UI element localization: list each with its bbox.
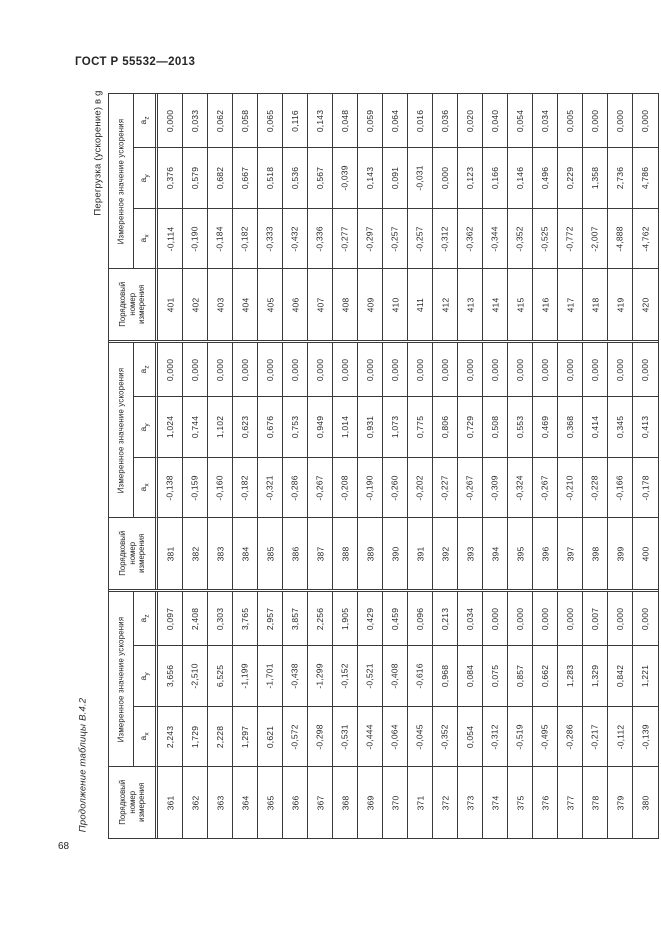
cell-az-366: 3,857 <box>283 592 308 646</box>
value-ay: 0,744 <box>190 416 200 438</box>
measurement-number: 420 <box>640 297 650 312</box>
value-az: 0,000 <box>641 358 651 380</box>
cell-ay-365: -1,701 <box>258 646 283 707</box>
value-az: 2,408 <box>190 607 200 629</box>
ordinal-header-line: Порядковый <box>118 282 128 327</box>
cell-ay-417: 0,229 <box>558 148 583 209</box>
cell-num-397: 397 <box>558 518 583 589</box>
value-ay: 2,736 <box>615 167 625 189</box>
band-401-420: Измеренное значение ускоренияazayaxПоряд… <box>109 94 658 343</box>
value-ay: -0,521 <box>365 663 375 688</box>
value-ay: 4,786 <box>641 167 651 189</box>
cell-ay-381: 1,024 <box>158 397 183 458</box>
measurement-number: 377 <box>565 795 575 810</box>
ordinal-header-lines: Порядковыйномеризмерения <box>118 282 147 327</box>
measurement-number: 368 <box>340 795 350 810</box>
value-az: 0,000 <box>390 358 400 380</box>
cell-num-419: 419 <box>608 269 633 340</box>
cell-az-370: 0,459 <box>383 592 408 646</box>
value-ay: 0,968 <box>440 665 450 687</box>
cell-ax-419: -4,888 <box>608 209 633 269</box>
cell-num-420: 420 <box>633 269 658 340</box>
value-ay: 0,229 <box>565 167 575 189</box>
axis-base: a <box>138 675 148 680</box>
measurement-number: 414 <box>490 297 500 312</box>
cell-num-391: 391 <box>408 518 433 589</box>
value-ax: -0,267 <box>465 475 475 500</box>
value-az: 0,000 <box>240 358 250 380</box>
cell-az-362: 2,408 <box>183 592 208 646</box>
cell-ax-384: -0,182 <box>233 458 258 518</box>
cell-ay-418: 1,358 <box>583 148 608 209</box>
value-ax: -0,286 <box>565 724 575 749</box>
value-ax: -0,210 <box>565 475 575 500</box>
cell-az-382: 0,000 <box>183 343 208 397</box>
cell-ax-413: -0,362 <box>458 209 483 269</box>
axis-base: a <box>138 426 148 431</box>
cell-ax-362: 1,729 <box>183 707 208 767</box>
cell-ay-414: 0,166 <box>483 148 508 209</box>
value-az: 0,000 <box>590 358 600 380</box>
cell-num-374: 374 <box>483 767 508 838</box>
cell-num-386: 386 <box>283 518 308 589</box>
value-ay: 0,345 <box>615 416 625 438</box>
value-ay: 3,656 <box>165 665 175 687</box>
cell-ax-401: -0,114 <box>158 209 183 269</box>
measurement-number: 370 <box>390 795 400 810</box>
axis-label-text: ay <box>138 174 151 182</box>
value-ay: 1,221 <box>641 665 651 687</box>
cell-az-403: 0,062 <box>208 94 233 148</box>
ordinal-header: Порядковыйномеризмерения <box>109 767 158 838</box>
value-az: 0,000 <box>540 358 550 380</box>
ordinal-header-line: номер <box>127 531 137 576</box>
cell-ax-373: 0,054 <box>458 707 483 767</box>
cell-az-369: 0,429 <box>358 592 383 646</box>
measured-group-header-label: Измеренное значение ускорения <box>117 118 126 244</box>
value-ax: -0,267 <box>540 475 550 500</box>
measurement-number: 417 <box>565 297 575 312</box>
value-az: 0,116 <box>290 110 300 132</box>
axis-label-ay: ay <box>134 646 158 707</box>
value-ay: -1,701 <box>265 663 275 688</box>
value-az: 1,905 <box>340 607 350 629</box>
measurement-table: Измеренное значение ускоренияazayaxПоряд… <box>108 93 659 839</box>
value-ay: 1,358 <box>590 167 600 189</box>
cell-ay-382: 0,744 <box>183 397 208 458</box>
value-ax: -0,208 <box>340 475 350 500</box>
cell-ay-364: -1,199 <box>233 646 258 707</box>
cell-num-373: 373 <box>458 767 483 838</box>
rotated-units-caption: Перегрузка (ускорение) в g <box>93 90 104 215</box>
measurement-number: 407 <box>315 297 325 312</box>
cell-ax-388: -0,208 <box>333 458 358 518</box>
cell-num-395: 395 <box>508 518 533 589</box>
cell-ay-374: 0,075 <box>483 646 508 707</box>
cell-ax-396: -0,267 <box>533 458 558 518</box>
cell-az-380: 0,000 <box>633 592 658 646</box>
axis-base: a <box>138 238 148 243</box>
cell-ax-377: -0,286 <box>558 707 583 767</box>
cell-ay-412: 0,000 <box>433 148 458 209</box>
value-ay: 0,753 <box>290 416 300 438</box>
cell-ay-419: 2,736 <box>608 148 633 209</box>
axis-subscript: x <box>144 483 151 486</box>
cell-ay-368: -0,152 <box>333 646 358 707</box>
cell-az-400: 0,000 <box>633 343 658 397</box>
cell-ax-406: -0,432 <box>283 209 308 269</box>
measurement-number: 406 <box>290 297 300 312</box>
cell-az-404: 0,058 <box>233 94 258 148</box>
value-az: 0,059 <box>365 109 375 131</box>
cell-num-378: 378 <box>583 767 608 838</box>
value-az: 0,058 <box>240 109 250 131</box>
axis-label-text: ay <box>138 672 151 680</box>
value-az: 0,000 <box>190 358 200 380</box>
ordinal-header-line: номер <box>127 780 137 825</box>
cell-ay-379: 0,842 <box>608 646 633 707</box>
cell-ay-390: 1,073 <box>383 397 408 458</box>
value-ay: 0,806 <box>440 416 450 438</box>
value-ax: -0,114 <box>165 226 175 251</box>
cell-ax-389: -0,190 <box>358 458 383 518</box>
axis-base: a <box>138 120 148 125</box>
cell-az-414: 0,040 <box>483 94 508 148</box>
value-az: 0,000 <box>440 358 450 380</box>
value-ax: -0,045 <box>415 724 425 749</box>
measured-group-header-label: Измеренное значение ускорения <box>117 616 126 742</box>
axis-base: a <box>138 736 148 741</box>
cell-ay-395: 0,553 <box>508 397 533 458</box>
cell-az-413: 0,020 <box>458 94 483 148</box>
cell-ax-397: -0,210 <box>558 458 583 518</box>
value-az: 0,000 <box>641 607 651 629</box>
cell-ay-380: 1,221 <box>633 646 658 707</box>
value-ax: 0,621 <box>265 725 275 747</box>
measurement-number: 418 <box>590 297 600 312</box>
value-ay: 0,414 <box>590 416 600 438</box>
value-ay: 0,166 <box>490 167 500 189</box>
axis-base: a <box>138 618 148 623</box>
cell-ax-394: -0,309 <box>483 458 508 518</box>
cell-ay-375: 0,857 <box>508 646 533 707</box>
cell-num-398: 398 <box>583 518 608 589</box>
cell-ay-370: -0,408 <box>383 646 408 707</box>
cell-ax-402: -0,190 <box>183 209 208 269</box>
value-ax: -0,519 <box>515 724 525 749</box>
cell-ay-362: -2,510 <box>183 646 208 707</box>
cell-ay-400: 0,413 <box>633 397 658 458</box>
axis-label-ax: ax <box>134 209 158 269</box>
value-az: 0,034 <box>540 109 550 131</box>
cell-ay-367: -1,299 <box>308 646 333 707</box>
value-ax: 1,297 <box>240 725 250 747</box>
cell-ax-420: -4,762 <box>633 209 658 269</box>
cell-ax-363: 2,228 <box>208 707 233 767</box>
cell-ax-381: -0,138 <box>158 458 183 518</box>
value-ax: -0,286 <box>290 475 300 500</box>
axis-label-text: ax <box>138 483 151 491</box>
measurement-number: 369 <box>365 795 375 810</box>
axis-label-ax: ax <box>134 458 158 518</box>
cell-ay-378: 1,329 <box>583 646 608 707</box>
cell-az-373: 0,034 <box>458 592 483 646</box>
value-ax: -0,362 <box>465 226 475 251</box>
measurement-number: 382 <box>190 546 200 561</box>
value-ax: -0,217 <box>590 724 600 749</box>
cell-ax-408: -0,277 <box>333 209 358 269</box>
axis-label-az: az <box>134 94 158 148</box>
measurement-number: 396 <box>540 546 550 561</box>
cell-az-402: 0,033 <box>183 94 208 148</box>
cell-ax-379: -0,112 <box>608 707 633 767</box>
cell-az-364: 3,765 <box>233 592 258 646</box>
value-ax: -0,352 <box>440 724 450 749</box>
value-ay: 1,283 <box>565 665 575 687</box>
cell-ax-411: -0,257 <box>408 209 433 269</box>
value-ay: 0,368 <box>565 416 575 438</box>
value-az: 0,000 <box>615 607 625 629</box>
measurement-number: 371 <box>415 795 425 810</box>
cell-ax-372: -0,352 <box>433 707 458 767</box>
cell-num-392: 392 <box>433 518 458 589</box>
value-az: 0,000 <box>290 358 300 380</box>
cell-ax-383: -0,160 <box>208 458 233 518</box>
cell-az-391: 0,000 <box>408 343 433 397</box>
value-az: 0,000 <box>590 109 600 131</box>
value-az: 0,000 <box>465 358 475 380</box>
cell-az-389: 0,000 <box>358 343 383 397</box>
measurement-number: 404 <box>240 297 250 312</box>
value-ay: 0,508 <box>490 416 500 438</box>
value-ay: 0,567 <box>315 167 325 189</box>
cell-ax-398: -0,228 <box>583 458 608 518</box>
value-ax: -0,202 <box>415 475 425 500</box>
measurement-number: 388 <box>340 546 350 561</box>
cell-num-382: 382 <box>183 518 208 589</box>
value-ax: -4,762 <box>641 226 651 251</box>
axis-subscript: x <box>144 732 151 735</box>
cell-az-419: 0,000 <box>608 94 633 148</box>
ordinal-header-line: номер <box>127 282 137 327</box>
measured-group-header: Измеренное значение ускорения <box>109 94 134 269</box>
value-az: 3,857 <box>290 607 300 629</box>
cell-num-372: 372 <box>433 767 458 838</box>
cell-az-371: 0,096 <box>408 592 433 646</box>
value-ax: -0,312 <box>490 724 500 749</box>
cell-ax-399: -0,166 <box>608 458 633 518</box>
axis-subscript: z <box>144 614 151 617</box>
cell-az-399: 0,000 <box>608 343 633 397</box>
measurement-number: 402 <box>190 297 200 312</box>
value-az: 0,000 <box>165 109 175 131</box>
value-ax: -0,159 <box>190 475 200 500</box>
value-az: 0,005 <box>565 109 575 131</box>
cell-ay-415: 0,146 <box>508 148 533 209</box>
value-ay: 0,376 <box>165 167 175 189</box>
value-ay: 0,075 <box>490 665 500 687</box>
measurement-number: 415 <box>515 297 525 312</box>
cell-ax-409: -0,297 <box>358 209 383 269</box>
cell-az-398: 0,000 <box>583 343 608 397</box>
cell-ay-384: 0,623 <box>233 397 258 458</box>
cell-ax-410: -0,257 <box>383 209 408 269</box>
value-az: 0,000 <box>490 358 500 380</box>
ordinal-header: Порядковыйномеризмерения <box>109 518 158 589</box>
value-ax: -0,525 <box>540 226 550 251</box>
axis-base: a <box>138 487 148 492</box>
value-az: 0,016 <box>415 109 425 131</box>
measurement-number: 395 <box>515 546 525 561</box>
value-ax: -0,297 <box>365 226 375 251</box>
value-ay: 0,579 <box>190 167 200 189</box>
measurement-number: 409 <box>365 297 375 312</box>
value-ax: 2,243 <box>165 725 175 747</box>
cell-num-406: 406 <box>283 269 308 340</box>
cell-ax-390: -0,260 <box>383 458 408 518</box>
value-ax: -0,336 <box>315 226 325 251</box>
measurement-number: 405 <box>265 297 275 312</box>
measurement-number: 375 <box>515 795 525 810</box>
cell-az-407: 0,143 <box>308 94 333 148</box>
cell-ay-376: 0,662 <box>533 646 558 707</box>
value-ay: 0,667 <box>240 167 250 189</box>
value-ax: -0,178 <box>641 475 651 500</box>
value-ax: -0,344 <box>490 226 500 251</box>
cell-az-397: 0,000 <box>558 343 583 397</box>
cell-az-375: 0,000 <box>508 592 533 646</box>
cell-az-392: 0,000 <box>433 343 458 397</box>
value-ay: -0,438 <box>290 663 300 688</box>
cell-ay-398: 0,414 <box>583 397 608 458</box>
measurement-number: 384 <box>240 546 250 561</box>
cell-ax-385: -0,321 <box>258 458 283 518</box>
cell-az-385: 0,000 <box>258 343 283 397</box>
measurement-number: 419 <box>615 297 625 312</box>
cell-az-418: 0,000 <box>583 94 608 148</box>
cell-ay-388: 1,014 <box>333 397 358 458</box>
measurement-number: 391 <box>415 546 425 561</box>
axis-label-ay: ay <box>134 397 158 458</box>
cell-az-368: 1,905 <box>333 592 358 646</box>
cell-ay-387: 0,949 <box>308 397 333 458</box>
measurement-number: 367 <box>315 795 325 810</box>
value-az: 0,000 <box>365 358 375 380</box>
value-ay: 0,496 <box>540 167 550 189</box>
cell-ay-402: 0,579 <box>183 148 208 209</box>
axis-base: a <box>138 369 148 374</box>
cell-ax-370: -0,064 <box>383 707 408 767</box>
axis-label-text: az <box>138 614 151 622</box>
measurement-number: 389 <box>365 546 375 561</box>
measurement-number: 399 <box>615 546 625 561</box>
value-az: 0,062 <box>215 109 225 131</box>
cell-num-369: 369 <box>358 767 383 838</box>
cell-ay-420: 4,786 <box>633 148 658 209</box>
value-ax: -0,260 <box>390 475 400 500</box>
cell-ay-369: -0,521 <box>358 646 383 707</box>
cell-ay-410: 0,091 <box>383 148 408 209</box>
value-ay: 1,014 <box>340 416 350 438</box>
measured-group-header-label: Измеренное значение ускорения <box>117 367 126 493</box>
measurement-number: 390 <box>390 546 400 561</box>
measurement-number: 362 <box>190 795 200 810</box>
cell-ay-366: -0,438 <box>283 646 308 707</box>
value-az: 0,000 <box>515 358 525 380</box>
measurement-number: 379 <box>615 795 625 810</box>
cell-az-388: 0,000 <box>333 343 358 397</box>
cell-ax-416: -0,525 <box>533 209 558 269</box>
measurement-number: 397 <box>565 546 575 561</box>
measurement-number: 398 <box>590 546 600 561</box>
cell-ay-383: 1,102 <box>208 397 233 458</box>
value-az: 0,097 <box>165 607 175 629</box>
value-az: 0,143 <box>315 109 325 131</box>
ordinal-header-line: измерения <box>137 780 147 825</box>
measurement-number: 412 <box>440 297 450 312</box>
cell-num-367: 367 <box>308 767 333 838</box>
axis-subscript: y <box>144 423 151 426</box>
cell-num-400: 400 <box>633 518 658 589</box>
value-az: 0,000 <box>215 358 225 380</box>
measured-group-header: Измеренное значение ускорения <box>109 592 134 767</box>
ordinal-header: Порядковыйномеризмерения <box>109 269 158 340</box>
cell-az-394: 0,000 <box>483 343 508 397</box>
axis-label-az: az <box>134 592 158 646</box>
value-ax: 0,054 <box>465 725 475 747</box>
value-ax: -0,190 <box>365 475 375 500</box>
cell-ax-364: 1,297 <box>233 707 258 767</box>
cell-ax-366: -0,572 <box>283 707 308 767</box>
cell-az-386: 0,000 <box>283 343 308 397</box>
value-ax: -0,312 <box>440 226 450 251</box>
value-ax: -0,184 <box>215 226 225 251</box>
measurement-number: 366 <box>290 795 300 810</box>
cell-ay-413: 0,123 <box>458 148 483 209</box>
cell-num-405: 405 <box>258 269 283 340</box>
cell-az-372: 0,213 <box>433 592 458 646</box>
cell-num-381: 381 <box>158 518 183 589</box>
value-ay: 0,623 <box>240 416 250 438</box>
cell-num-394: 394 <box>483 518 508 589</box>
value-ay: 0,775 <box>415 416 425 438</box>
value-ax: -0,531 <box>340 724 350 749</box>
cell-num-402: 402 <box>183 269 208 340</box>
cell-num-361: 361 <box>158 767 183 838</box>
axis-subscript: y <box>144 672 151 675</box>
cell-num-418: 418 <box>583 269 608 340</box>
cell-num-383: 383 <box>208 518 233 589</box>
cell-ax-382: -0,159 <box>183 458 208 518</box>
measurement-number: 374 <box>490 795 500 810</box>
cell-ay-385: 0,676 <box>258 397 283 458</box>
cell-az-406: 0,116 <box>283 94 308 148</box>
ordinal-header-lines: Порядковыйномеризмерения <box>118 780 147 825</box>
cell-num-366: 366 <box>283 767 308 838</box>
cell-ay-409: 0,143 <box>358 148 383 209</box>
measured-group-header: Измеренное значение ускорения <box>109 343 134 518</box>
value-ax: 1,729 <box>190 725 200 747</box>
cell-num-362: 362 <box>183 767 208 838</box>
axis-label-text: ax <box>138 732 151 740</box>
value-az: 0,000 <box>615 109 625 131</box>
value-ay: 0,553 <box>515 416 525 438</box>
cell-az-416: 0,034 <box>533 94 558 148</box>
value-ax: -0,333 <box>265 226 275 251</box>
cell-ax-391: -0,202 <box>408 458 433 518</box>
value-ay: 0,143 <box>365 167 375 189</box>
cell-az-401: 0,000 <box>158 94 183 148</box>
